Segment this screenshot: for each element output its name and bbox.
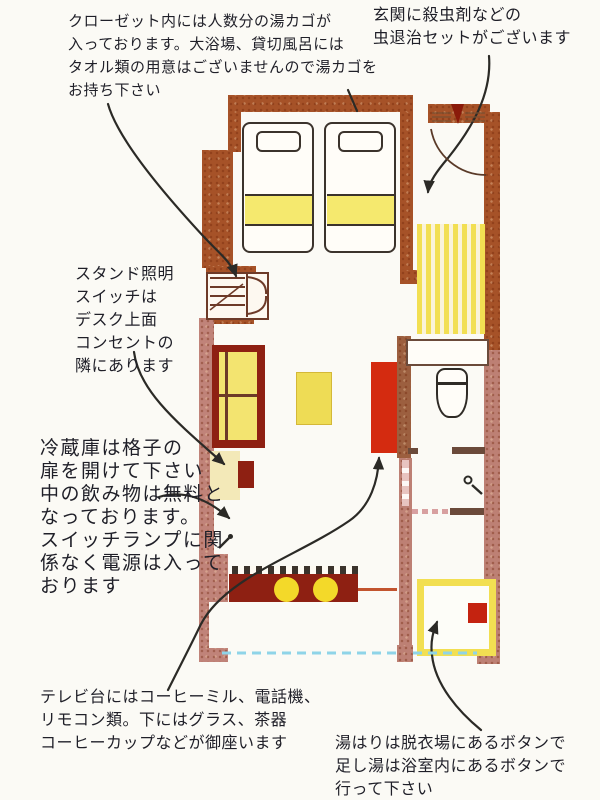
note-line: コンセントの	[75, 331, 174, 354]
stool-1	[274, 577, 299, 602]
wash-sliding-door	[402, 460, 409, 506]
note-line: 隣にあります	[75, 354, 174, 377]
wall-bottom-stub-mid	[397, 645, 413, 662]
note-line: 入っております。大浴場、貸切風呂には	[68, 33, 378, 56]
note-line: スタンド照明	[75, 262, 174, 285]
partition-toilet-wash-left	[408, 448, 418, 454]
wall-left-bottom-stub	[199, 648, 228, 662]
wall-mid-upper	[400, 112, 413, 284]
entrance-door-arc	[431, 129, 486, 175]
note-tv: テレビ台にはコーヒーミル、電話機、 リモコン類。下にはグラス、茶器 コーヒーカッ…	[40, 685, 321, 754]
note-line: テレビ台にはコーヒーミル、電話機、	[40, 685, 321, 708]
note-line: 冷蔵庫は格子の	[40, 437, 225, 460]
partition-wash-bath-right	[450, 508, 484, 515]
bed-2-blanket-band	[327, 194, 394, 226]
note-line: おります	[40, 575, 225, 598]
washroom-fixture-icon	[465, 477, 483, 495]
toilet-counter	[406, 339, 489, 366]
note-line: リモコン類。下にはグラス、茶器	[40, 708, 321, 731]
wall-mid-stub	[400, 270, 418, 284]
wall-left-upper	[202, 150, 233, 268]
desk-edge-hatch	[232, 566, 358, 574]
tv-cabinet	[371, 362, 397, 453]
note-line: タオル類の用意はございませんので湯カゴを	[68, 56, 378, 79]
wall-right-upper	[484, 112, 500, 350]
note-closet: クローゼット内には人数分の湯カゴが 入っております。大浴場、貸切風呂には タオル…	[68, 10, 378, 102]
wall-entrance-top	[428, 104, 490, 123]
scanned-floorplan-page: クローゼット内には人数分の湯カゴが 入っております。大浴場、貸切風呂には タオル…	[0, 0, 600, 800]
wall-left-corner	[228, 112, 241, 152]
note-line: お持ち下さい	[68, 79, 378, 102]
note-line: 湯はりは脱衣場にあるボタンで	[335, 731, 566, 754]
desk-connector-line	[358, 588, 397, 591]
note-entrance: 玄関に殺虫剤などの 虫退治セットがございます	[373, 3, 571, 49]
partition-wash-bath-door	[412, 509, 449, 514]
note-line: 行って下さい	[335, 777, 566, 800]
bath-faucet	[468, 603, 487, 623]
stool-2	[313, 577, 338, 602]
note-line: 係なく電源は入って	[40, 552, 225, 575]
bed-1-blanket-band	[245, 194, 312, 226]
note-lamp: スタンド照明 スイッチは デスク上面 コンセントの 隣にあります	[75, 262, 174, 377]
closet-shelves	[210, 277, 245, 312]
entrance-mat	[417, 224, 485, 334]
pillow-1	[256, 131, 301, 152]
note-line: コーヒーカップなどが御座います	[40, 731, 321, 754]
note-line: 玄関に殺虫剤などの	[373, 3, 571, 26]
note-line: デスク上面	[75, 308, 174, 331]
sofa-seam-v	[225, 352, 228, 440]
note-bath: 湯はりは脱衣場にあるボタンで 足し湯は浴室内にあるボタンで 行って下さい	[335, 731, 566, 800]
note-line: クローゼット内には人数分の湯カゴが	[68, 10, 378, 33]
floor-lamp	[238, 461, 254, 488]
partition-toilet-wash-right	[452, 447, 485, 454]
toilet-seat-line	[438, 382, 466, 385]
note-fridge: 冷蔵庫は格子の 扉を開けて下さい 中の飲み物は無料と なっております。 スイッチ…	[40, 437, 225, 598]
pillow-2	[338, 131, 383, 152]
coffee-table	[296, 372, 332, 425]
note-line: 足し湯は浴室内にあるボタンで	[335, 754, 566, 777]
note-line: なっております。	[40, 506, 225, 529]
arrow-entrance	[428, 56, 489, 192]
note-line: 虫退治セットがございます	[373, 26, 571, 49]
note-line: スイッチランプに関	[40, 529, 225, 552]
note-line: スイッチは	[75, 285, 174, 308]
note-line: 扉を開けて下さい	[40, 460, 225, 483]
toilet	[436, 368, 468, 418]
note-line: 中の飲み物は無料と	[40, 483, 225, 506]
